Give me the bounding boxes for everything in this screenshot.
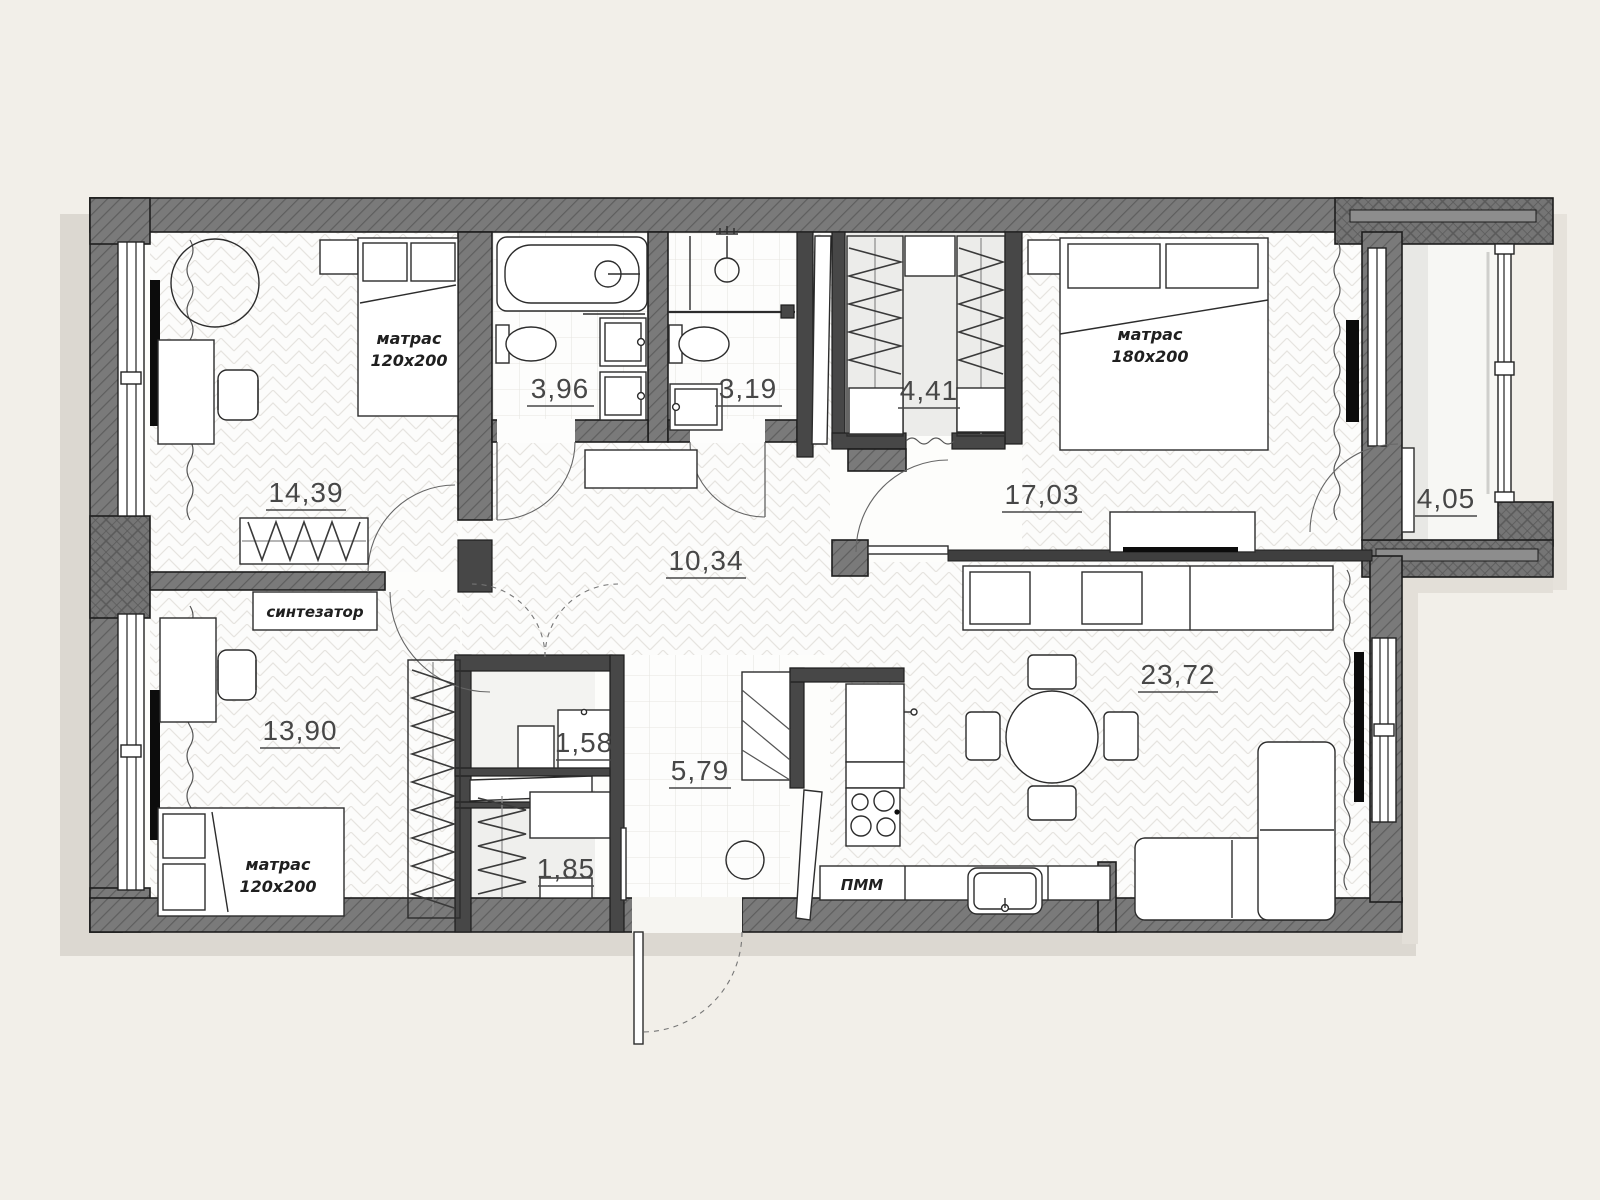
entrance-door bbox=[632, 897, 742, 1044]
area-label-entry-hall: 5,79 bbox=[671, 755, 730, 786]
area-label-shower: 3,19 bbox=[719, 373, 778, 404]
open-door-leaf-wardrobe bbox=[812, 236, 831, 444]
drawer-box bbox=[849, 388, 903, 434]
drawer-box bbox=[957, 388, 1005, 432]
tv-icon bbox=[1123, 547, 1238, 552]
window-bedroom-balcony bbox=[1368, 248, 1386, 446]
radiator bbox=[1346, 320, 1359, 422]
chair-icon bbox=[966, 712, 1000, 760]
area-label-bathroom: 3,96 bbox=[531, 373, 590, 404]
bed-single-icon bbox=[358, 238, 458, 416]
bathtub-icon bbox=[497, 237, 647, 314]
mattress-label: матрас bbox=[377, 329, 442, 348]
clothes-rack bbox=[240, 518, 368, 564]
dishwasher-label: ПММ bbox=[841, 876, 883, 894]
basket bbox=[518, 726, 554, 768]
chair-icon bbox=[1028, 655, 1076, 689]
toilet-icon bbox=[669, 325, 729, 363]
sink-icon bbox=[600, 318, 646, 366]
mattress-size: 180x200 bbox=[1111, 347, 1188, 366]
chair-icon bbox=[1028, 786, 1076, 820]
radiator bbox=[1354, 652, 1364, 802]
toilet-icon bbox=[496, 325, 556, 363]
hall-bench bbox=[585, 450, 697, 488]
mattress-size: 120x200 bbox=[370, 351, 447, 370]
nightstand bbox=[320, 240, 358, 274]
kitchen-counter bbox=[846, 762, 904, 788]
area-label-hallway: 10,34 bbox=[668, 545, 743, 576]
mattress-size: 120x200 bbox=[239, 877, 316, 896]
balcony-door-leaf bbox=[1402, 448, 1414, 532]
window-left-top bbox=[118, 242, 144, 516]
tv-console bbox=[963, 566, 1333, 630]
tv-stand bbox=[1110, 512, 1255, 552]
synthesizer-icon: синтезатор bbox=[253, 592, 377, 630]
floor-plan-drawing: матрас 120x200 14,39 3,96 bbox=[0, 0, 1600, 1200]
shelf-box bbox=[905, 236, 955, 276]
chair-icon bbox=[1104, 712, 1138, 760]
stove-icon bbox=[846, 788, 900, 846]
floor-plan: матрас 120x200 14,39 3,96 bbox=[0, 0, 1600, 1200]
sink-icon bbox=[670, 384, 722, 430]
mattress-label: матрас bbox=[246, 855, 311, 874]
window-left-bottom bbox=[118, 614, 144, 890]
area-label-balcony: 4,05 bbox=[1417, 483, 1476, 514]
area-label-bedroom-top-left: 14,39 bbox=[268, 477, 343, 508]
synthesizer-label: синтезатор bbox=[266, 603, 363, 621]
area-label-storage-small: 1,58 bbox=[555, 727, 614, 758]
room-balcony: 4,05 bbox=[1415, 483, 1477, 516]
area-label-storage-lower: 1,85 bbox=[537, 853, 596, 884]
desk bbox=[160, 618, 216, 722]
bed-double-icon bbox=[1060, 238, 1268, 450]
sink-icon bbox=[600, 372, 646, 420]
area-label-wardrobe: 4,41 bbox=[900, 375, 959, 406]
shelf-box bbox=[530, 792, 610, 838]
desk bbox=[158, 340, 214, 444]
chair-icon bbox=[218, 650, 256, 700]
sink-icon bbox=[968, 868, 1042, 914]
mattress-label: матрас bbox=[1118, 325, 1183, 344]
room-hallway: 10,34 bbox=[666, 545, 746, 578]
chair-icon bbox=[218, 370, 258, 420]
mirror-cabinet bbox=[742, 672, 790, 780]
area-label-bedroom-bottom-left: 13,90 bbox=[262, 715, 337, 746]
area-label-master-bedroom: 17,03 bbox=[1004, 479, 1079, 510]
area-label-living-kitchen: 23,72 bbox=[1140, 659, 1215, 690]
window-living-right bbox=[1372, 638, 1396, 822]
closet-door-leaf bbox=[621, 828, 626, 900]
